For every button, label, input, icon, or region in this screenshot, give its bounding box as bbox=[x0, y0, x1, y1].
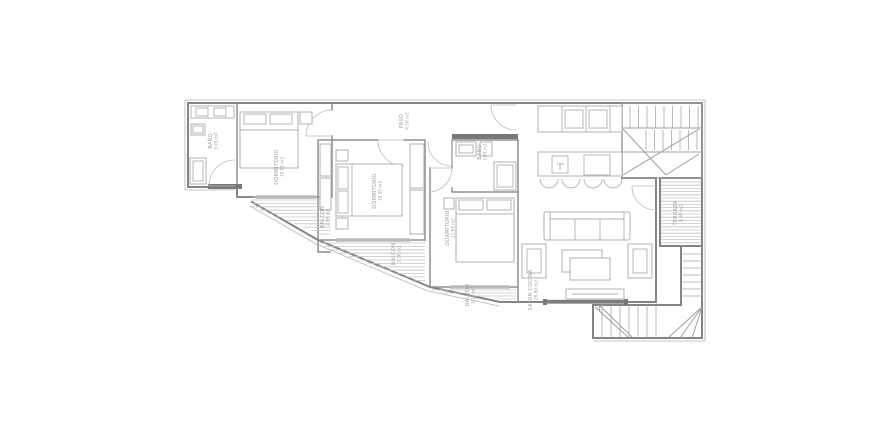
bedroom1-window bbox=[256, 196, 316, 199]
bath1-shower bbox=[190, 158, 206, 184]
bath2-door bbox=[428, 142, 452, 166]
svg-text:11.65 m2: 11.65 m2 bbox=[451, 218, 456, 238]
living-room-furniture bbox=[522, 212, 652, 299]
label-bedroom3: DORMITORIO 11.65 m2 bbox=[445, 210, 456, 245]
wardrobe bbox=[410, 190, 424, 234]
bed-2 bbox=[336, 164, 402, 216]
kitchen-island bbox=[538, 152, 622, 176]
bath1-door bbox=[209, 160, 235, 186]
floor-plan-drawing: BAÑO 3.70 m2 DORMITORIO 10.95 m2 DORMITO… bbox=[0, 0, 890, 440]
svg-text:8.40 m2: 8.40 m2 bbox=[679, 204, 684, 222]
svg-text:4.10 m2: 4.10 m2 bbox=[405, 112, 410, 130]
svg-text:10.95 m2: 10.95 m2 bbox=[280, 157, 285, 177]
bedroom2-door bbox=[378, 140, 404, 166]
kitchen bbox=[538, 106, 622, 188]
terrace-door bbox=[632, 186, 656, 210]
label-bath1: BAÑO 3.70 m2 bbox=[207, 132, 219, 150]
bath2-top-wall bbox=[452, 134, 518, 139]
wardrobe bbox=[320, 178, 331, 210]
bar-stools bbox=[540, 179, 622, 188]
bedroom2-window bbox=[336, 239, 410, 242]
bedroom3-door bbox=[430, 168, 452, 192]
svg-text:3.15 m2: 3.15 m2 bbox=[471, 286, 476, 304]
label-bath2: BAÑO 3.45 m2 bbox=[476, 143, 488, 161]
svg-text:26.80 m2: 26.80 m2 bbox=[534, 280, 539, 300]
svg-text:3.70 m2: 3.70 m2 bbox=[214, 132, 219, 150]
wardrobe bbox=[320, 144, 331, 176]
label-paso: PASO 4.10 m2 bbox=[399, 112, 410, 130]
nightstand bbox=[444, 198, 454, 209]
glass-door-jamb-right bbox=[624, 299, 628, 305]
threshold-entry bbox=[208, 184, 242, 189]
glass-door-jamb-left bbox=[543, 299, 547, 305]
kitchen-entry-door bbox=[491, 105, 516, 130]
label-balcony2: BALCON 5.20 m2 bbox=[391, 243, 402, 265]
bed-1 bbox=[240, 112, 298, 168]
label-balcony1: BALCON 4.95 m2 bbox=[320, 206, 331, 228]
svg-text:10.35 m2: 10.35 m2 bbox=[378, 181, 383, 201]
bed-3 bbox=[456, 198, 514, 262]
floor-plan-page: BAÑO 3.70 m2 DORMITORIO 10.95 m2 DORMITO… bbox=[0, 0, 890, 440]
balcony2-decking bbox=[320, 243, 425, 280]
nightstand bbox=[336, 150, 348, 161]
staircase-main bbox=[622, 103, 702, 178]
coffee-table-2 bbox=[570, 258, 610, 280]
svg-text:3.45 m2: 3.45 m2 bbox=[483, 143, 488, 161]
nightstand bbox=[300, 112, 312, 124]
wardrobe bbox=[410, 144, 424, 188]
svg-text:4.95 m2: 4.95 m2 bbox=[326, 208, 331, 226]
bedroom3-window bbox=[450, 286, 510, 289]
svg-text:5.20 m2: 5.20 m2 bbox=[397, 245, 402, 263]
nightstand bbox=[336, 218, 348, 229]
sofa bbox=[544, 212, 630, 240]
label-balcony3: BALCON 3.15 m2 bbox=[465, 284, 476, 306]
